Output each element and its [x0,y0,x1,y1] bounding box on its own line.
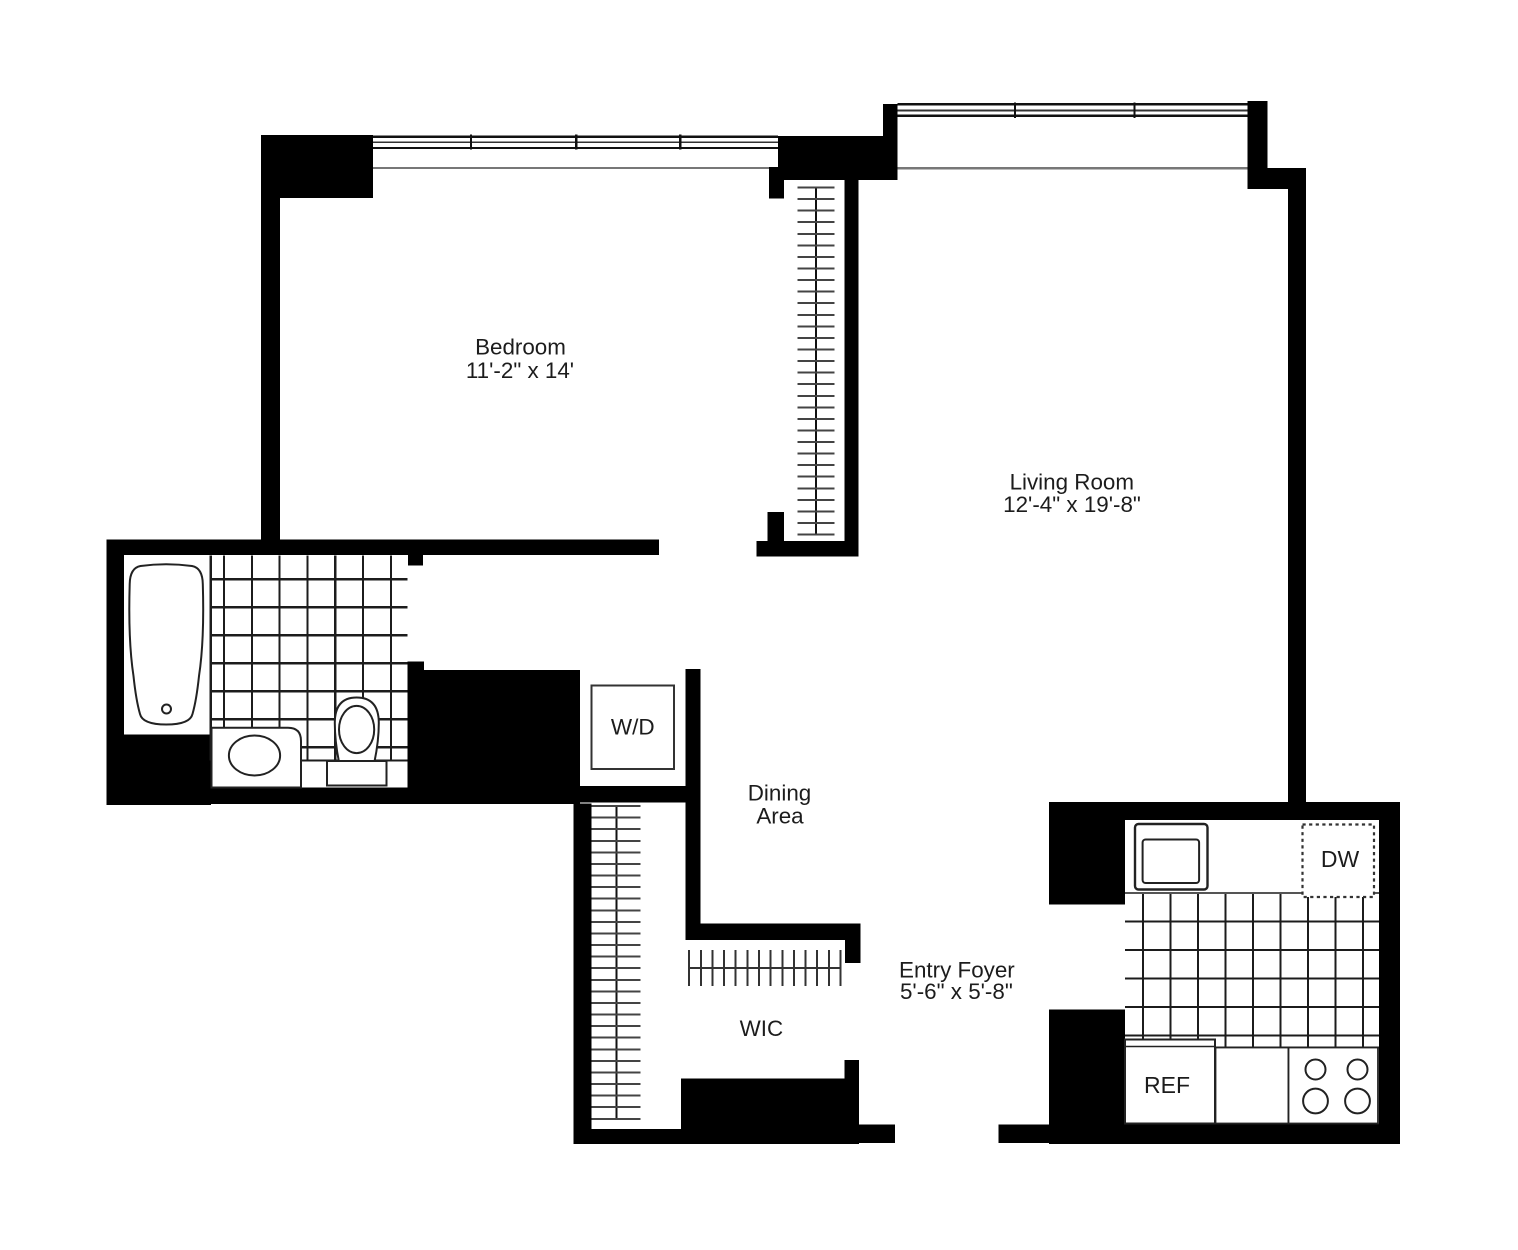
svg-text:Bedroom: Bedroom [475,335,566,360]
svg-text:12'-4" x 19'-8": 12'-4" x 19'-8" [1003,492,1141,517]
svg-text:DW: DW [1321,846,1360,872]
svg-text:WIC: WIC [740,1016,784,1041]
svg-text:Area: Area [756,804,804,829]
svg-text:Living Room: Living Room [1010,470,1134,495]
svg-text:Dining: Dining [748,780,811,805]
svg-text:11'-2" x 14': 11'-2" x 14' [466,358,574,383]
svg-text:5'-6" x 5'-8": 5'-6" x 5'-8" [900,979,1013,1004]
svg-text:REF: REF [1144,1072,1190,1098]
svg-text:W/D: W/D [611,715,655,740]
